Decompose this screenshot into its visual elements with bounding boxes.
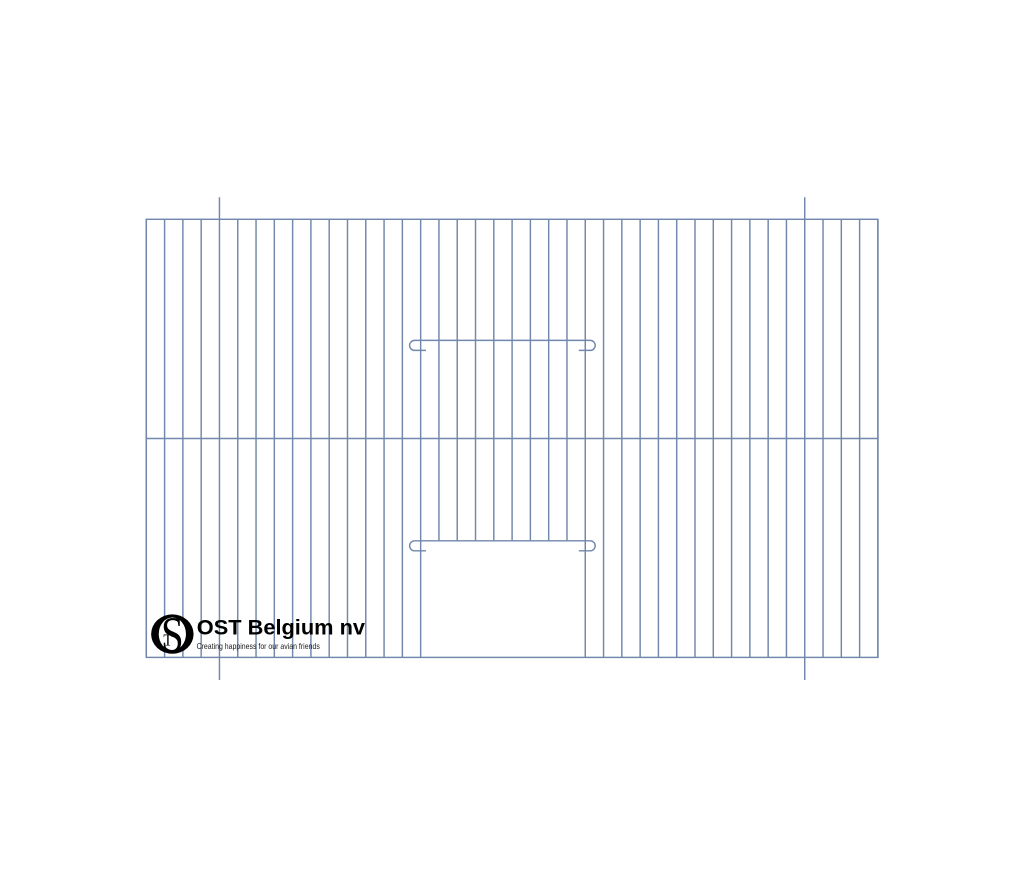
svg-text:OST Belgium nv: OST Belgium nv xyxy=(197,617,366,640)
svg-text:Creating happiness for our avi: Creating happiness for our avian friends xyxy=(197,642,320,651)
svg-text:T: T xyxy=(163,632,172,650)
